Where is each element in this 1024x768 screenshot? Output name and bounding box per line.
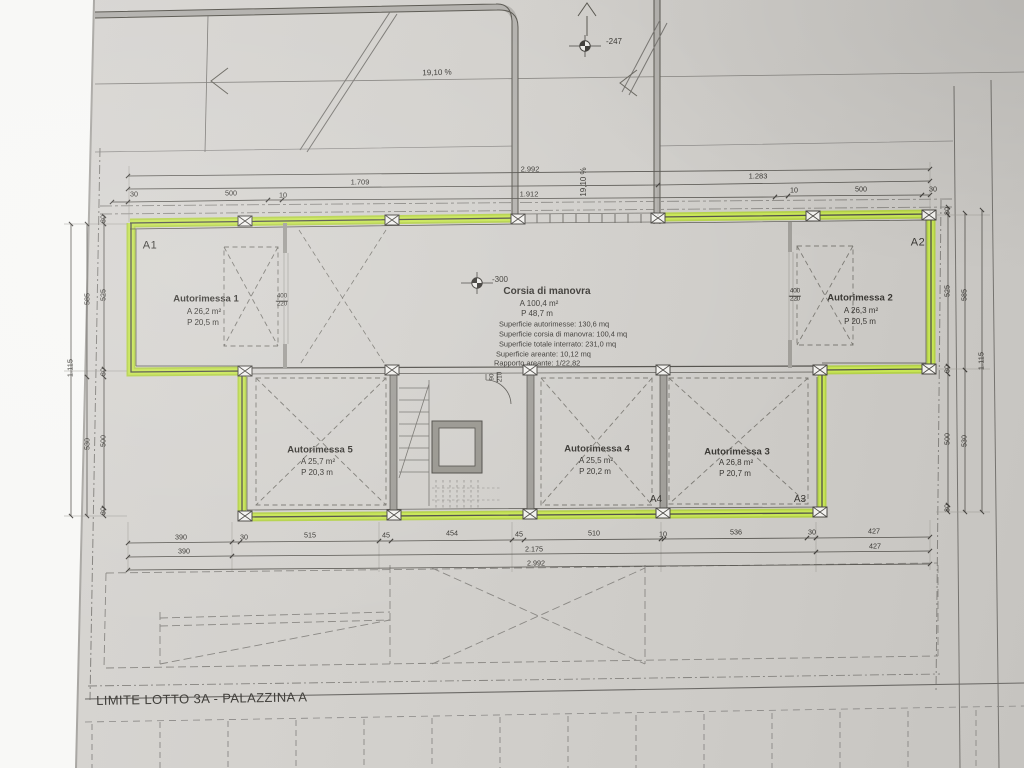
- dim-right-mid-1: 530: [960, 435, 967, 447]
- dim-bottom-r1-3: 45: [382, 531, 390, 538]
- dim-bottom-r1-6: 510: [588, 529, 600, 536]
- slope-label-top: 19,10 %: [422, 69, 452, 78]
- dim-right-inner-4: 30: [943, 504, 950, 512]
- room-area-corsia: A 100,4 m²: [520, 300, 559, 308]
- dim-right-mid-0: 585: [960, 289, 967, 301]
- dim-top-total: 2.992: [521, 165, 540, 173]
- dim-bottom-r1-1: 30: [240, 533, 248, 540]
- room-title-a2: Autorimessa 2: [827, 293, 892, 303]
- room-title-a5: Autorimessa 5: [287, 445, 352, 455]
- dim-top-small-r1: 500: [855, 185, 867, 192]
- elevation-garage: -300: [492, 276, 508, 284]
- dim-top-small-r2: 30: [929, 185, 937, 192]
- door-height-a1: 220: [276, 302, 288, 309]
- door-height-a2: 220: [789, 297, 801, 304]
- plan-linework: [0, 0, 1024, 768]
- door-size-a2: 400220: [789, 289, 801, 304]
- room-perimeter-a2: P 20,5 m: [844, 318, 876, 326]
- dim-bottom-r1-8: 536: [730, 528, 742, 535]
- stat-rapporto-areante: Rapporto areante: 1/22,82: [494, 359, 580, 366]
- room-perimeter-corsia: P 48,7 m: [521, 310, 553, 318]
- dim-top-ramp: 1.912: [520, 190, 539, 198]
- room-area-a1: A 26,2 m²: [187, 308, 221, 316]
- room-area-a3: A 26,8 m²: [719, 459, 753, 467]
- dim-bottom-r1-4: 454: [446, 529, 458, 536]
- dim-top-small-l2: 10: [279, 191, 287, 198]
- room-area-a5: A 25,7 m²: [301, 458, 335, 466]
- stat-superficie-autorimesse: Superficie autorimesse: 130,6 mq: [499, 320, 609, 327]
- scanned-plan-sheet: 19,10 % -247 19,10 % 2.992 1.709 1.283 1…: [0, 0, 1024, 768]
- door-size-a1: 400220: [276, 294, 288, 309]
- dim-top-small-r0: 10: [790, 186, 798, 193]
- lot-limit-label: LIMITE LOTTO 3A - PALAZZINA A: [96, 690, 307, 707]
- dim-bottom-r1-7: 10: [659, 530, 667, 537]
- room-perimeter-a5: P 20,3 m: [301, 469, 333, 477]
- room-code-a3: A3: [794, 495, 806, 505]
- dim-left-mid-1: 530: [83, 438, 90, 450]
- stat-superficie-areante: Superficie areante: 10,12 mq: [496, 350, 591, 357]
- stat-superficie-corsia: Superficie corsia di manovra: 100,4 mq: [499, 330, 627, 337]
- room-area-a2: A 26,3 m²: [844, 307, 878, 315]
- dim-left-inner-4: 30: [99, 507, 106, 515]
- room-code-a4: A4: [650, 495, 662, 505]
- door-height-stair: 210: [498, 372, 505, 382]
- dim-left-inner-0: 30: [99, 215, 106, 223]
- slope-label-ramp: 19,10 %: [580, 167, 588, 196]
- elevation-street: -247: [606, 38, 622, 46]
- dim-top-small-l0: 30: [130, 190, 138, 197]
- dim-bottom-r2-0: 390: [178, 547, 190, 554]
- dim-right-inner-1: 525: [943, 285, 950, 297]
- room-code-a2: A2: [911, 238, 925, 249]
- dim-bottom-r1-9: 30: [808, 528, 816, 535]
- dim-top-left-half: 1.709: [351, 178, 370, 186]
- room-area-a4: A 25,5 m²: [579, 457, 613, 465]
- room-code-a1: A1: [143, 241, 157, 252]
- dim-bottom-r2-1: 2.175: [525, 545, 543, 552]
- dim-right-inner-2: 30: [943, 365, 950, 373]
- dim-right-inner-3: 500: [943, 433, 950, 445]
- room-title-a3: Autorimessa 3: [704, 447, 769, 457]
- dim-right-outer: 1.115: [977, 352, 985, 370]
- stat-superficie-interrato: Superficie totale interrato: 231,0 mq: [499, 340, 616, 347]
- dim-right-inner-0: 30: [943, 207, 950, 215]
- dim-top-right-half: 1.283: [749, 172, 768, 180]
- room-title-a1: Autorimessa 1: [173, 294, 238, 304]
- dim-left-inner-2: 30: [99, 368, 106, 376]
- door-size-stair: 90210: [490, 372, 505, 382]
- room-title-corsia: Corsia di manovra: [503, 287, 590, 297]
- dim-top-small-l1: 500: [225, 189, 237, 196]
- dim-bottom-r1-2: 515: [304, 531, 316, 538]
- dim-bottom-r3: 2.992: [527, 559, 545, 566]
- dim-left-mid-0: 585: [83, 293, 90, 305]
- dim-left-inner-3: 500: [99, 435, 106, 447]
- dim-bottom-r1-0: 390: [175, 533, 187, 540]
- room-perimeter-a1: P 20,5 m: [187, 319, 219, 327]
- dim-bottom-r1-5: 45: [515, 530, 523, 537]
- room-perimeter-a4: P 20,2 m: [579, 468, 611, 476]
- dim-bottom-r2-2: 427: [869, 542, 881, 549]
- dim-left-inner-1: 525: [99, 289, 106, 301]
- dim-bottom-r1-10: 427: [868, 527, 880, 534]
- dim-left-outer: 1.115: [66, 359, 74, 377]
- room-title-a4: Autorimessa 4: [564, 444, 629, 454]
- room-perimeter-a3: P 20,7 m: [719, 470, 751, 478]
